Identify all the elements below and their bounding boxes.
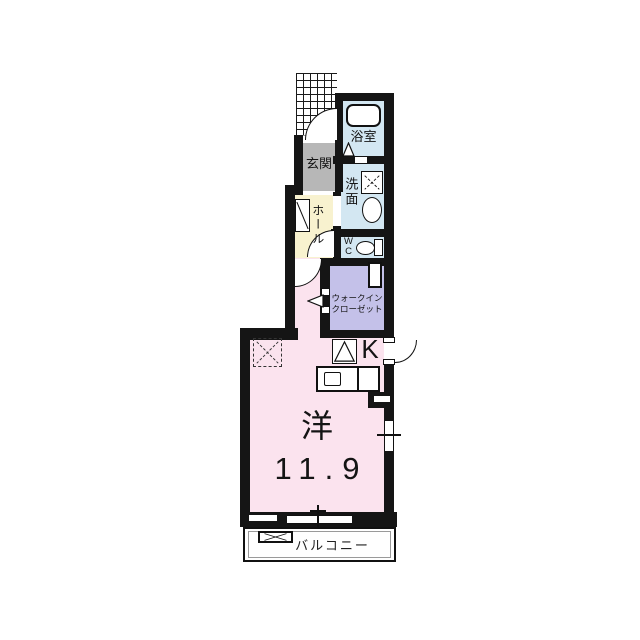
floor-plan: 玄関 浴室 洗面 ホール W C ウォークイン クローゼット K 洋 11.9 …	[0, 0, 640, 640]
washroom-door-opening	[333, 196, 341, 226]
kitchen-door-swing	[395, 340, 417, 363]
wash-basin-icon	[362, 197, 382, 223]
bottom-wall-slit	[249, 515, 277, 521]
genkan-label: 玄関	[303, 155, 335, 173]
kitchen-sink-icon	[324, 372, 341, 386]
kitchen-label: K	[356, 336, 384, 364]
balcony-window-tick-cross	[310, 510, 326, 512]
toilet-bowl-icon	[356, 241, 375, 255]
kitchen-counter-divider	[357, 366, 359, 392]
wall-washroom-bottom	[331, 229, 394, 237]
wic-label-line1: ウォークイン	[331, 293, 382, 304]
kitchen-door-opening	[384, 341, 394, 361]
wall-genkan-left	[294, 135, 303, 195]
balcony-label: バルコニー	[285, 537, 380, 554]
wc-label-line2: C	[345, 247, 352, 257]
washroom-label: 洗面	[342, 170, 359, 214]
kitchen-door-jamb-top	[383, 337, 395, 343]
stove-icon	[332, 339, 357, 364]
wic-corner-notch	[368, 262, 382, 288]
main-room-size-label: 11.9	[250, 450, 384, 488]
washing-machine-space-icon	[361, 171, 383, 194]
wic-entry-arrow-icon	[307, 294, 324, 308]
refrigerator-space-icon	[253, 338, 282, 367]
counter-wall-slit	[374, 396, 390, 402]
wc-label: W C	[342, 236, 355, 258]
main-room-type-label: 洋	[250, 408, 384, 446]
wall-right-upper	[384, 93, 394, 332]
shoe-cabinet-icon	[295, 199, 310, 232]
wall-wc-bottom	[320, 258, 394, 266]
bathroom-label: 浴室	[343, 128, 384, 145]
bathtub-icon	[346, 104, 381, 127]
walk-in-closet-label: ウォークイン クローゼット	[330, 292, 384, 316]
wall-hall-left	[285, 185, 295, 340]
hall-label: ホール	[310, 196, 325, 254]
wic-label-line2: クローゼット	[331, 304, 382, 315]
balcony-sliding-window	[287, 515, 352, 524]
bath-wall-slit	[355, 157, 367, 163]
right-wall-window	[384, 421, 394, 451]
toilet-tank-icon	[374, 239, 383, 256]
wall-main-left	[240, 328, 250, 527]
kitchen-door-jamb-bottom	[383, 359, 395, 365]
